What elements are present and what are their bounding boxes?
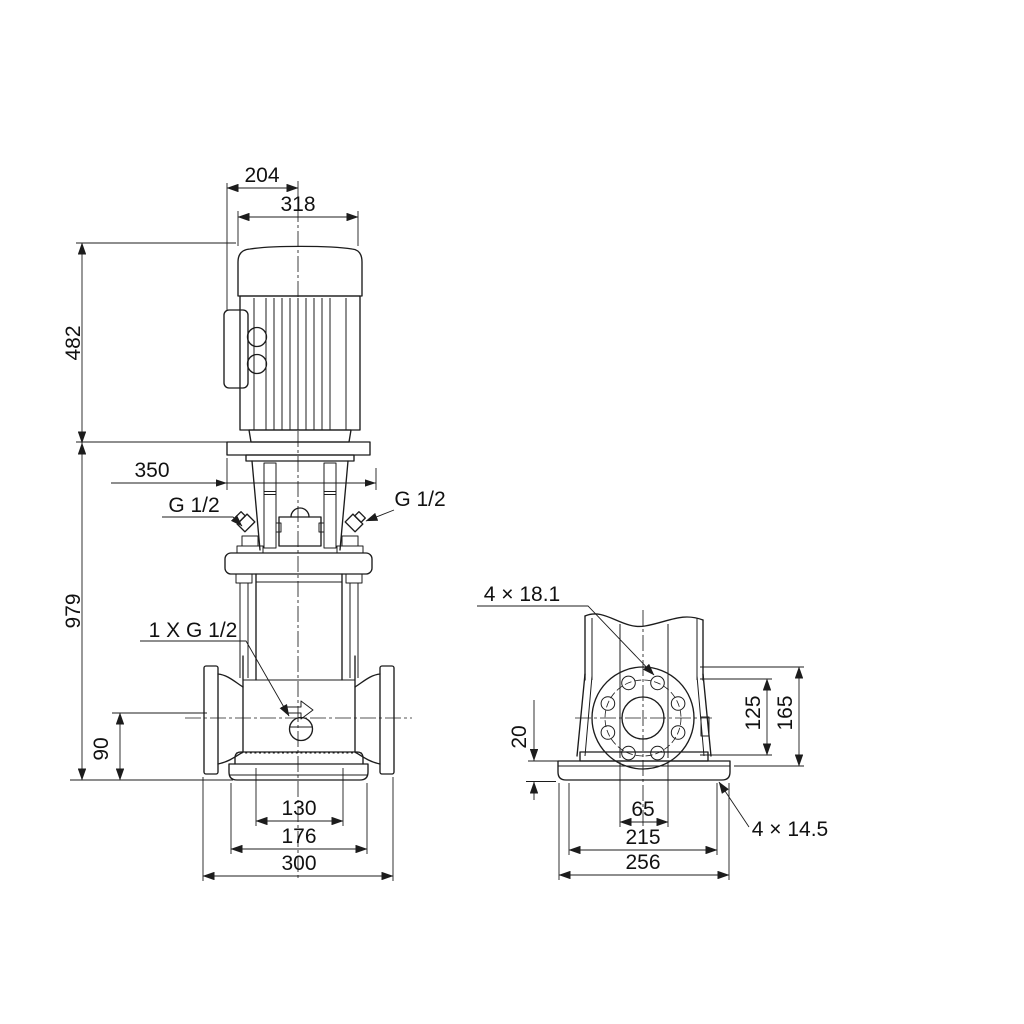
dim-256-label: 256 xyxy=(625,851,660,874)
dim-65-label: 65 xyxy=(631,798,654,821)
pump-body xyxy=(225,553,372,752)
dim-130-label: 130 xyxy=(281,797,316,820)
dim-20-label: 20 xyxy=(508,725,531,748)
dim-176-label: 176 xyxy=(281,825,316,848)
gauge-right-label: G 1/2 xyxy=(394,488,445,511)
motor-fins xyxy=(266,298,330,430)
coupling-guards xyxy=(264,463,336,548)
front-base xyxy=(229,752,368,780)
stool-top-plate xyxy=(246,455,354,461)
discharge-flange xyxy=(355,666,394,774)
dim-318-label: 318 xyxy=(280,193,315,216)
flow-arrow-icon xyxy=(286,701,313,719)
motor-flange xyxy=(227,442,370,455)
gauge-plug-right xyxy=(345,510,367,532)
label-drain: 1 X G 1/2 xyxy=(140,619,289,716)
flange-holes-label: 4 × 18.1 xyxy=(484,583,560,606)
dimension-65: 65 xyxy=(620,762,668,827)
dim-482-label: 482 xyxy=(62,325,85,360)
suction-flange xyxy=(204,666,243,774)
drawing-svg: 204 318 482 979 350 xyxy=(0,0,1024,1024)
dim-125-label: 125 xyxy=(742,695,765,730)
pump-head xyxy=(225,553,372,574)
gauge-left-label: G 1/2 xyxy=(168,494,219,517)
terminal-box xyxy=(224,310,248,388)
gauge-plug-left xyxy=(233,510,255,532)
head-nuts xyxy=(237,536,363,553)
motor-stool xyxy=(233,461,367,553)
motor-outline xyxy=(224,246,370,461)
dimension-20: 20 xyxy=(508,700,562,800)
label-flange-holes: 4 × 18.1 xyxy=(477,583,654,675)
motor-end-shield xyxy=(249,430,351,442)
dimension-90: 90 xyxy=(90,713,207,780)
dim-165-label: 165 xyxy=(774,695,797,730)
cable-entry-top xyxy=(248,328,267,347)
dim-350-label: 350 xyxy=(134,459,169,482)
dimension-125: 125 xyxy=(700,679,772,755)
drain-label: 1 X G 1/2 xyxy=(149,619,238,642)
cable-entry-bottom xyxy=(248,355,267,374)
dimension-130: 130 xyxy=(256,768,343,826)
label-foot-holes: 4 × 14.5 xyxy=(719,782,828,841)
dimension-482: 482 xyxy=(62,243,236,443)
label-gauge-left: G 1/2 xyxy=(162,494,242,526)
dim-979-label: 979 xyxy=(62,593,85,628)
side-base xyxy=(558,752,730,780)
drain-plug xyxy=(236,701,362,753)
side-view: 20 125 165 65 215 xyxy=(477,583,828,880)
front-centerlines xyxy=(185,181,412,879)
coupling xyxy=(276,508,324,546)
dim-215-label: 215 xyxy=(625,826,660,849)
dim-204-label: 204 xyxy=(244,164,279,187)
foot-holes-label: 4 × 14.5 xyxy=(752,818,828,841)
front-view: 204 318 482 979 350 xyxy=(62,164,446,881)
pump-dimensional-drawing: 204 318 482 979 350 xyxy=(0,0,1024,1024)
dim-300-label: 300 xyxy=(281,852,316,875)
label-gauge-right: G 1/2 xyxy=(366,488,446,521)
dim-90-label: 90 xyxy=(90,737,113,760)
